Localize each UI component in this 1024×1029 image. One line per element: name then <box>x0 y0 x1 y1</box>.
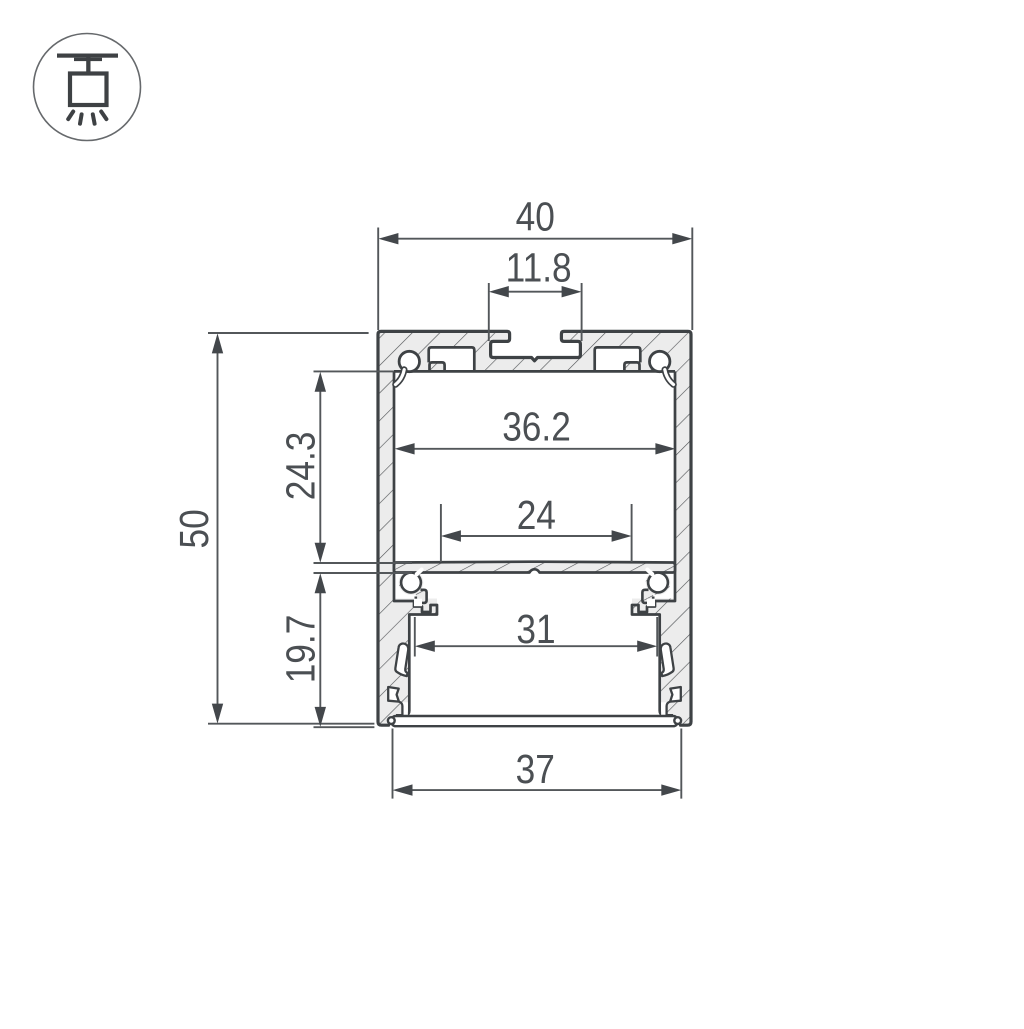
svg-text:11.8: 11.8 <box>506 245 572 291</box>
svg-text:50: 50 <box>171 509 217 548</box>
svg-text:40: 40 <box>516 194 555 240</box>
svg-text:37: 37 <box>516 747 555 793</box>
svg-text:36.2: 36.2 <box>502 404 571 450</box>
svg-text:31: 31 <box>516 606 555 652</box>
svg-text:19.7: 19.7 <box>278 615 324 684</box>
svg-text:24.3: 24.3 <box>278 432 324 501</box>
svg-text:24: 24 <box>517 493 556 539</box>
